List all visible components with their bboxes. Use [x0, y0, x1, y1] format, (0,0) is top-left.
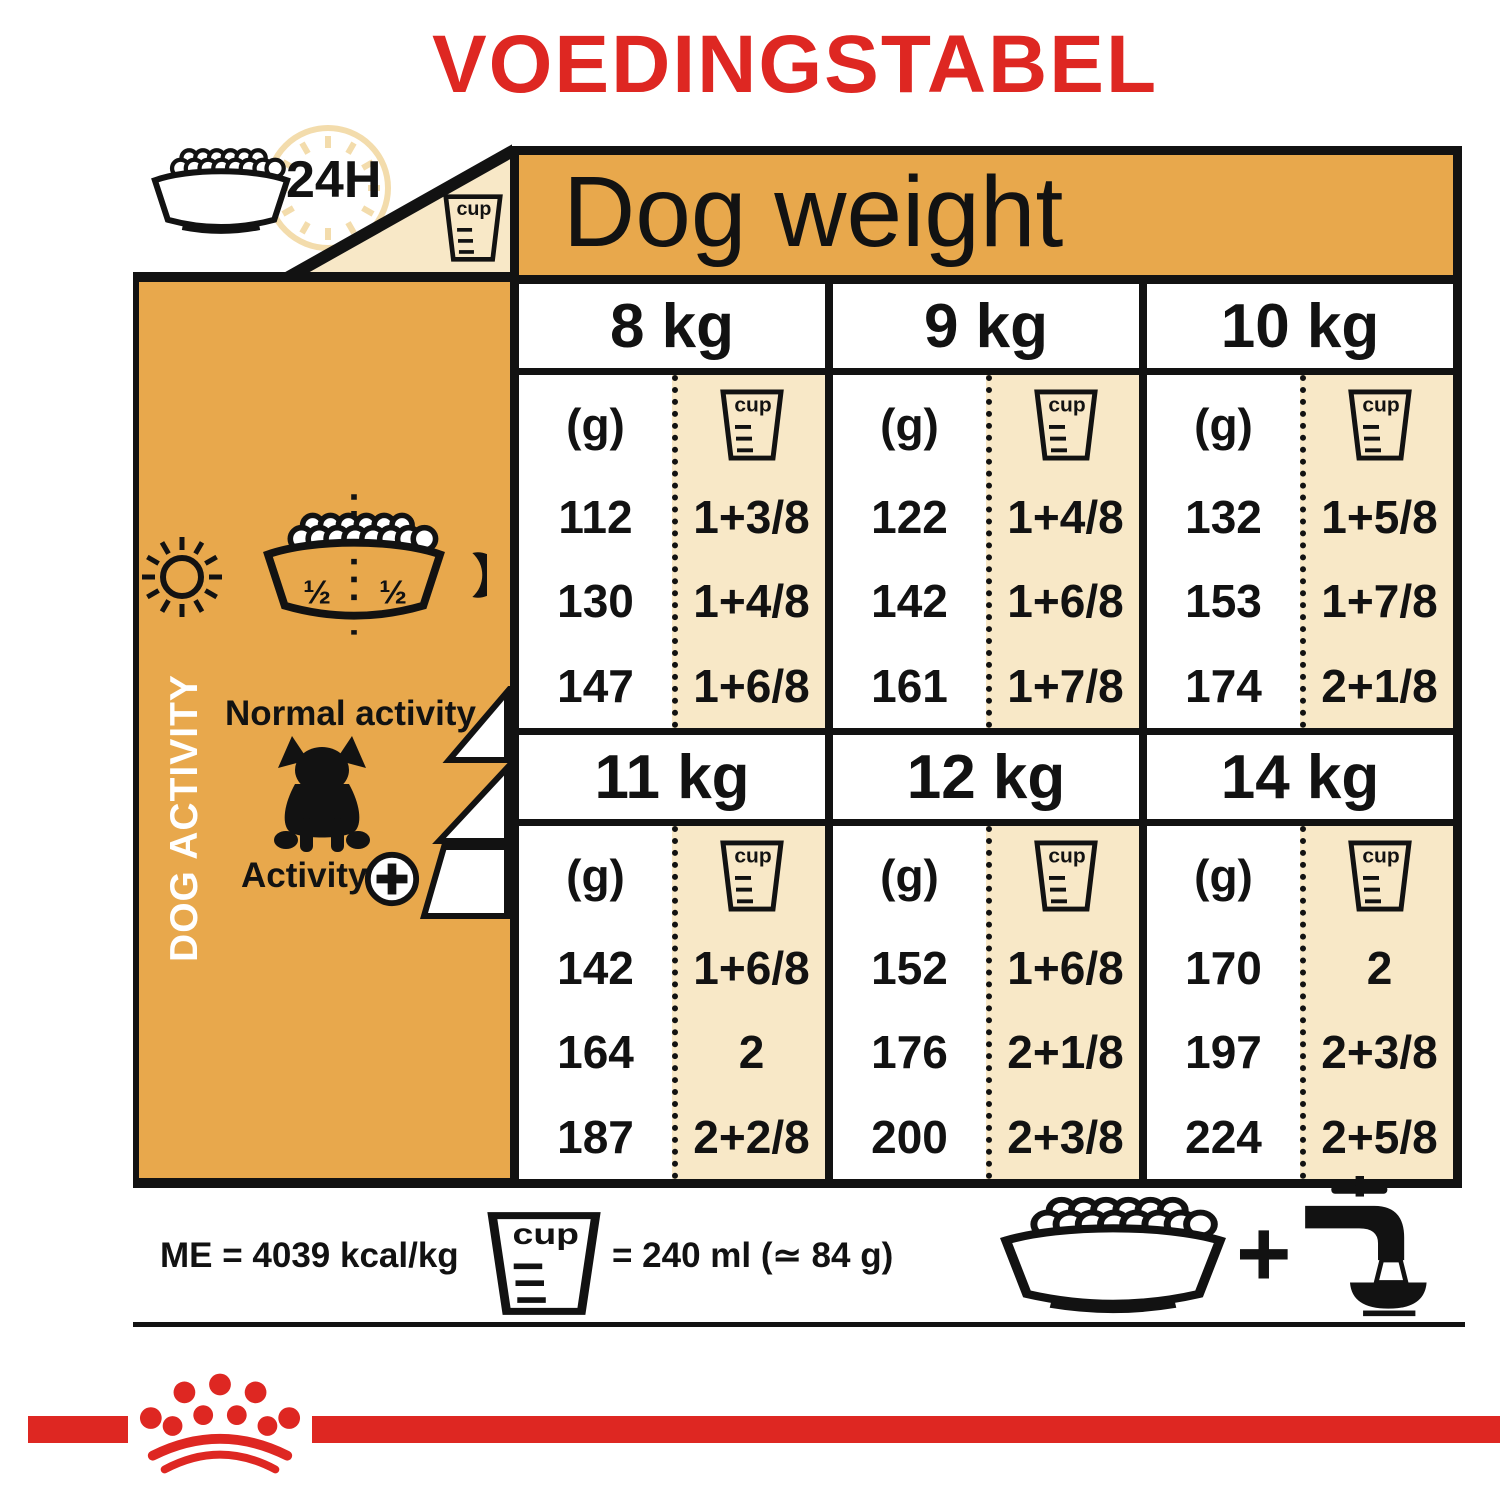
- dog-silhouette-icon: [265, 734, 379, 856]
- water-tap-icon: [1293, 1176, 1435, 1318]
- cup-value: 1+3/8: [678, 475, 825, 559]
- cups-subcolumn: cup 1+5/81+7/82+1/8: [1300, 375, 1453, 728]
- cup-value: 1+7/8: [992, 644, 1139, 728]
- weight-column: (g)132153174 cup 1+5/81+7/82+1/8: [1139, 375, 1453, 728]
- grams-header: (g): [833, 375, 986, 475]
- grams-value: 187: [519, 1095, 672, 1179]
- cup-icon: cup: [443, 193, 503, 263]
- svg-text:cup: cup: [734, 393, 771, 416]
- grams-value: 130: [519, 559, 672, 643]
- divider-line: [133, 1322, 1465, 1327]
- half-portions-bowl-icon: ½ ½: [259, 492, 449, 648]
- weight-header: 10 kg: [1139, 284, 1453, 368]
- svg-text:cup: cup: [1048, 393, 1085, 416]
- grams-subcolumn: (g)152176200: [833, 826, 986, 1179]
- grams-value: 197: [1147, 1010, 1300, 1094]
- grams-value: 174: [1147, 644, 1300, 728]
- dog-activity-vertical-label: DOG ACTIVITY: [163, 648, 207, 988]
- weight-column: (g)152176200 cup 1+6/82+1/82+3/8: [825, 826, 1139, 1179]
- red-bar-right: [312, 1416, 1500, 1443]
- cup-value: 2+5/8: [1306, 1095, 1453, 1179]
- cup-value: 2+1/8: [1306, 644, 1453, 728]
- page-title: VOEDINGSTABEL: [130, 18, 1460, 112]
- cups-subcolumn: cup 1+6/822+2/8: [672, 826, 825, 1179]
- plus-label: +: [1236, 1200, 1291, 1309]
- food-bowl-icon: [995, 1194, 1231, 1316]
- cup-icon: cup: [678, 375, 825, 475]
- cup-value: 2+3/8: [1306, 1010, 1453, 1094]
- weight-column: (g)112130147 cup 1+3/81+4/81+6/8: [519, 375, 825, 728]
- cup-icon: cup: [487, 1210, 601, 1317]
- bank-data-row: (g)112130147 cup 1+3/81+4/81+6/8(g)12214…: [519, 375, 1453, 735]
- bank-data-row: (g)142164187 cup 1+6/822+2/8(g)152176200…: [519, 826, 1453, 1179]
- weight-column: (g)142164187 cup 1+6/822+2/8: [519, 826, 825, 1179]
- cup-value: 1+6/8: [678, 644, 825, 728]
- cup-value: 1+5/8: [1306, 475, 1453, 559]
- dog-weight-header: Dog weight: [519, 155, 1453, 284]
- cup-icon: cup: [1306, 826, 1453, 926]
- red-bar-left: [28, 1416, 128, 1443]
- feeding-table: Dog weight 8 kg9 kg10 kg(g)112130147 cup…: [510, 146, 1462, 1188]
- cup-icon: cup: [992, 375, 1139, 475]
- svg-text:cup: cup: [1362, 844, 1399, 867]
- grams-value: 132: [1147, 475, 1300, 559]
- grams-header: (g): [519, 826, 672, 926]
- cup-value: 2+1/8: [992, 1010, 1139, 1094]
- activity-plus-icon: [363, 850, 421, 908]
- weight-header-row: 8 kg9 kg10 kg: [519, 284, 1453, 375]
- cup-icon: cup: [678, 826, 825, 926]
- svg-text:½: ½: [379, 574, 407, 611]
- cup-value: 2: [1306, 926, 1453, 1010]
- grams-value: 142: [833, 559, 986, 643]
- cups-subcolumn: cup 1+6/82+1/82+3/8: [986, 826, 1139, 1179]
- grams-subcolumn: (g)170197224: [1147, 826, 1300, 1179]
- cup-value: 2: [678, 1010, 825, 1094]
- grams-value: 164: [519, 1010, 672, 1094]
- cup-value: 1+7/8: [1306, 559, 1453, 643]
- grams-value: 200: [833, 1095, 986, 1179]
- grams-subcolumn: (g)142164187: [519, 826, 672, 1179]
- grams-header: (g): [1147, 375, 1300, 475]
- weight-column: (g)170197224 cup 22+3/82+5/8: [1139, 826, 1453, 1179]
- metabolizable-energy-label: ME = 4039 kcal/kg: [160, 1236, 459, 1276]
- grams-value: 153: [1147, 559, 1300, 643]
- grams-value: 170: [1147, 926, 1300, 1010]
- svg-text:cup: cup: [1048, 844, 1085, 867]
- cup-value: 1+6/8: [992, 559, 1139, 643]
- grams-value: 147: [519, 644, 672, 728]
- svg-text:cup: cup: [1362, 393, 1399, 416]
- cups-subcolumn: cup 22+3/82+5/8: [1300, 826, 1453, 1179]
- cup-value: 2+3/8: [992, 1095, 1139, 1179]
- sun-icon: [139, 534, 225, 620]
- weight-header-row: 11 kg12 kg14 kg: [519, 735, 1453, 826]
- grams-value: 152: [833, 926, 986, 1010]
- cup-icon: cup: [992, 826, 1139, 926]
- svg-text:cup: cup: [456, 198, 491, 220]
- grams-value: 224: [1147, 1095, 1300, 1179]
- cup-value: 1+4/8: [678, 559, 825, 643]
- weight-header: 8 kg: [519, 284, 825, 368]
- svg-text:½: ½: [303, 574, 331, 611]
- grams-subcolumn: (g)132153174: [1147, 375, 1300, 728]
- grams-header: (g): [1147, 826, 1300, 926]
- grams-header: (g): [833, 826, 986, 926]
- svg-text:cup: cup: [513, 1217, 579, 1250]
- grams-value: 176: [833, 1010, 986, 1094]
- activity-label: Activity: [241, 856, 367, 896]
- royal-canin-crown-logo: [136, 1372, 304, 1474]
- weight-header: 9 kg: [825, 284, 1139, 368]
- feeding-table-page: VOEDINGSTABEL 24H cup ½ ½ DOG ACTIVITY N…: [0, 0, 1500, 1500]
- weight-column: (g)122142161 cup 1+4/81+6/81+7/8: [825, 375, 1139, 728]
- weight-header: 12 kg: [825, 735, 1139, 819]
- grams-subcolumn: (g)112130147: [519, 375, 672, 728]
- cup-value: 2+2/8: [678, 1095, 825, 1179]
- cup-value: 1+6/8: [678, 926, 825, 1010]
- weight-header: 14 kg: [1139, 735, 1453, 819]
- grams-header: (g): [519, 375, 672, 475]
- dog-activity-sidebar: ½ ½ DOG ACTIVITY Normal activity Activit…: [133, 272, 510, 1188]
- grams-value: 161: [833, 644, 986, 728]
- cup-value: 1+4/8: [992, 475, 1139, 559]
- svg-text:cup: cup: [734, 844, 771, 867]
- weight-header: 11 kg: [519, 735, 825, 819]
- grams-value: 112: [519, 475, 672, 559]
- grams-subcolumn: (g)122142161: [833, 375, 986, 728]
- activity-level-triangles: [415, 686, 511, 926]
- moon-icon: [443, 540, 487, 610]
- cup-equivalence-label: = 240 ml (≃ 84 g): [612, 1236, 893, 1276]
- cups-subcolumn: cup 1+3/81+4/81+6/8: [672, 375, 825, 728]
- cups-subcolumn: cup 1+4/81+6/81+7/8: [986, 375, 1139, 728]
- cup-value: 1+6/8: [992, 926, 1139, 1010]
- grams-value: 142: [519, 926, 672, 1010]
- grams-value: 122: [833, 475, 986, 559]
- cup-icon: cup: [1306, 375, 1453, 475]
